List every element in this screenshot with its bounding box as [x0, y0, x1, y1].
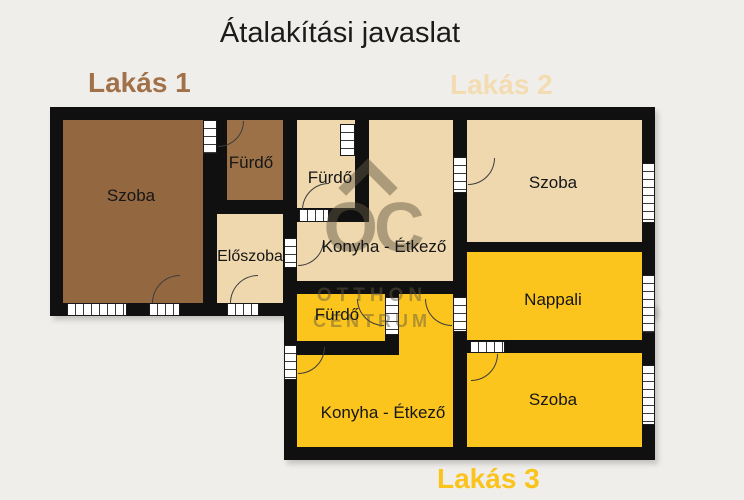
- door-nappali-szoba-frame-icon: [470, 341, 505, 353]
- page-title: Átalakítási javaslat: [220, 17, 460, 50]
- room-label-l3-furdo: Fürdő: [315, 305, 359, 325]
- door-l2-konyha-szoba-frame-icon: [453, 157, 467, 193]
- label-lakas-3: Lakás 3: [437, 463, 540, 495]
- label-lakas-1: Lakás 1: [88, 67, 191, 99]
- room-label-l2-konyha: Konyha - Étkező: [322, 237, 447, 257]
- door-entrance-eloszoba-frame-icon: [227, 303, 259, 316]
- floor-plan: Átalakítási javaslat Lakás 1 Lakás 2 Lak…: [0, 0, 744, 500]
- door-nappali-frame-icon: [453, 297, 467, 332]
- window-nappali-east-icon: [642, 275, 655, 333]
- room-label-l3-konyha: Konyha - Étkező: [321, 403, 446, 423]
- window-l2-szoba-east-icon: [642, 163, 655, 223]
- room-label-l2-szoba: Szoba: [529, 173, 577, 193]
- door-eloszoba-konyha-frame-icon: [284, 238, 297, 268]
- door-entrance-l3-frame-icon: [284, 345, 297, 380]
- room-label-eloszoba: Előszoba: [217, 248, 283, 266]
- window-l3-szoba-east-icon: [642, 365, 655, 425]
- room-label-nappali: Nappali: [524, 290, 582, 310]
- room-label-l3-szoba: Szoba: [529, 390, 577, 410]
- door-entrance-l1-frame-icon: [149, 303, 180, 316]
- room-label-l1-szoba: Szoba: [107, 186, 155, 206]
- label-lakas-2: Lakás 2: [450, 69, 553, 101]
- watermark-line1: OTTHON: [317, 285, 427, 307]
- room-l1-szoba: [63, 120, 203, 303]
- room-label-l1-furdo: Fürdő: [229, 153, 273, 173]
- window-l2-furdo-icon: [340, 124, 355, 156]
- window-l1-szoba-south-icon: [67, 303, 127, 316]
- room-label-l2-furdo: Fürdő: [308, 168, 352, 188]
- door-l1-szoba-furdo-frame-icon: [203, 120, 217, 154]
